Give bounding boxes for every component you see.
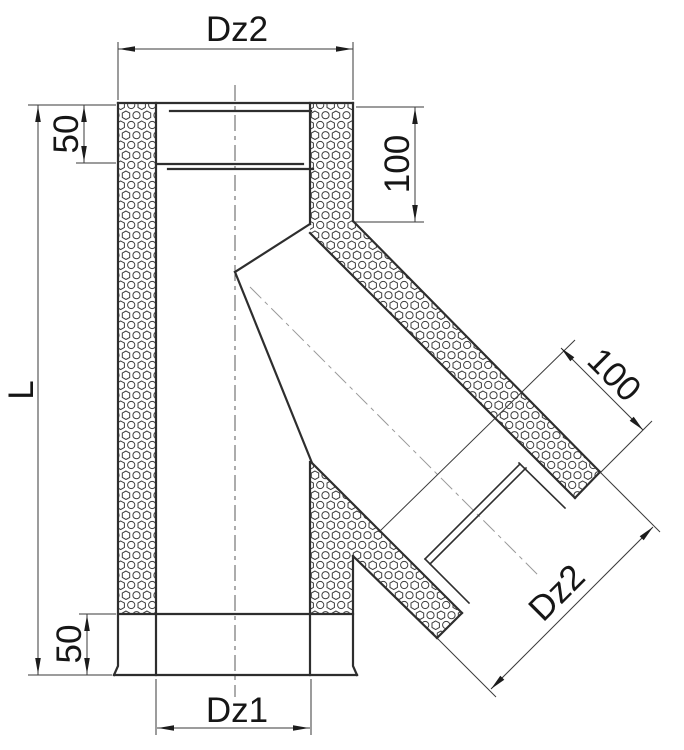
chimney-tee-drawing: Dz2 50 100 L 50 Dz1 100 Dz2 (0, 0, 684, 750)
insulation-left-column (118, 103, 156, 614)
label-dz2-top: Dz2 (206, 10, 268, 49)
label-socket-top-50: 50 (47, 115, 86, 154)
label-socket-bottom-50: 50 (50, 625, 89, 664)
label-total-length: L (2, 380, 41, 399)
label-100-top-right: 100 (378, 135, 417, 193)
insulation-right-column-top (310, 103, 353, 233)
technical-drawing-page: Dz2 50 100 L 50 Dz1 100 Dz2 (0, 0, 684, 750)
label-dz1-bottom: Dz1 (206, 691, 268, 730)
